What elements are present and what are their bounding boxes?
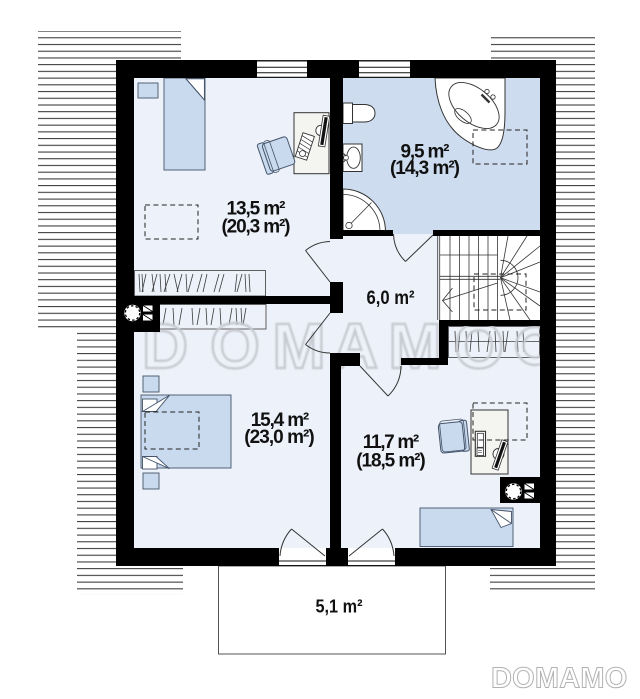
- svg-text:5,1 m²: 5,1 m²: [316, 596, 363, 617]
- svg-text:(23,0 m²): (23,0 m²): [244, 427, 315, 448]
- svg-text:O: O: [210, 310, 260, 382]
- svg-text:M: M: [272, 310, 325, 382]
- svg-text:6,0 m²: 6,0 m²: [367, 288, 415, 309]
- svg-text:(20,3 m²): (20,3 m²): [222, 217, 291, 238]
- svg-text:M: M: [388, 310, 441, 382]
- svg-text:DOMAMO: DOMAMO: [491, 663, 628, 695]
- svg-text:(18,5 m²): (18,5 m²): [356, 451, 426, 472]
- svg-text:(14,3 m²): (14,3 m²): [390, 158, 460, 179]
